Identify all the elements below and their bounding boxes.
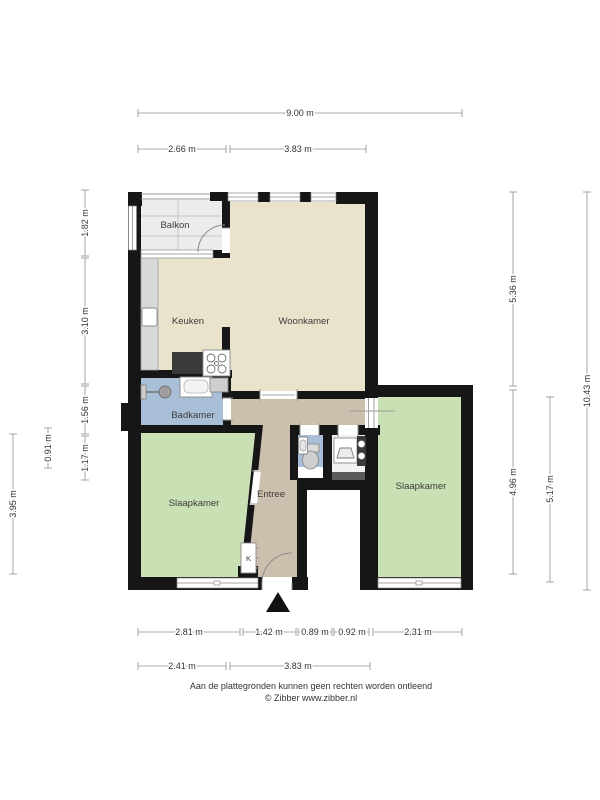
svg-text:3.10 m: 3.10 m: [80, 307, 90, 335]
door-wc: [300, 423, 319, 437]
dim-top-right: 3.83 m: [230, 144, 366, 154]
svg-text:2.81 m: 2.81 m: [175, 627, 203, 637]
svg-text:0.89 m: 0.89 m: [301, 627, 329, 637]
svg-text:0.92 m: 0.92 m: [338, 627, 366, 637]
dim-top-left: 2.66 m: [138, 144, 226, 154]
closet-label: K: [246, 554, 251, 563]
floorplan-canvas: K Balkon Keuken Woonkamer Badkamer Slaap…: [0, 0, 600, 800]
wc-sink-icon: [299, 437, 308, 454]
dim-top-total: 9.00 m: [138, 108, 462, 118]
svg-text:5.17 m: 5.17 m: [545, 475, 555, 503]
dim-bottom-slaapkamer-rechts: 2.31 m: [373, 627, 462, 637]
svg-text:3.83 m: 3.83 m: [284, 661, 312, 671]
bathroom-cabinet: [210, 378, 228, 392]
dim-bottom-entree: 1.42 m: [243, 627, 296, 637]
svg-text:0.91 m: 0.91 m: [43, 434, 53, 462]
svg-text:4.96 m: 4.96 m: [508, 468, 518, 496]
svg-text:3.95 m: 3.95 m: [8, 490, 18, 518]
svg-text:2.41 m: 2.41 m: [168, 661, 196, 671]
dim-left-slaapkamer: 3.95 m: [8, 434, 18, 574]
svg-text:3.83 m: 3.83 m: [284, 144, 312, 154]
window-slaapkamer-links: [177, 578, 258, 588]
footer-copyright: © Zibber www.zibber.nl: [265, 693, 357, 703]
dim-bottom2-links: 2.41 m: [138, 661, 226, 671]
window-woonkamer-2: [270, 193, 300, 201]
dim-bottom-slaapkamer-links: 2.81 m: [138, 627, 240, 637]
window-woonkamer-3: [311, 193, 336, 201]
washing-machine-icon: [334, 436, 366, 466]
label-slaapkamer-rechts: Slaapkamer: [396, 481, 447, 492]
label-balkon: Balkon: [160, 220, 189, 231]
hob-icon: [203, 350, 230, 376]
label-keuken: Keuken: [172, 316, 204, 327]
dim-bottom-wc: 0.89 m: [298, 627, 332, 637]
svg-text:10.43 m: 10.43 m: [582, 375, 592, 408]
svg-text:1.56 m: 1.56 m: [80, 396, 90, 424]
svg-text:9.00 m: 9.00 m: [286, 108, 314, 118]
washok-counter-strip: [332, 472, 365, 480]
dim-left-klein: 0.91 m: [43, 428, 53, 468]
bathroom-sink-icon: [180, 377, 212, 397]
dim-right-onder-buiten: 5.17 m: [545, 397, 555, 582]
kitchen-sink-icon: [142, 308, 157, 326]
svg-text:2.66 m: 2.66 m: [168, 144, 196, 154]
dim-left-balkon: 1.82 m: [80, 190, 90, 256]
footer: Aan de plattegronden kunnen geen rechten…: [190, 681, 432, 703]
window-woonkamer-1: [228, 193, 258, 201]
dim-right-totaal: 10.43 m: [582, 192, 592, 590]
label-slaapkamer-links: Slaapkamer: [169, 498, 220, 509]
svg-text:1.82 m: 1.82 m: [80, 209, 90, 237]
stove-icon: [172, 352, 203, 374]
floorplan-page: K Balkon Keuken Woonkamer Badkamer Slaap…: [0, 0, 600, 800]
dim-right-onder-binnen: 4.96 m: [508, 390, 518, 574]
hall-corridor: [231, 397, 365, 427]
door-washok: [338, 423, 358, 437]
balkon-railing: [141, 194, 210, 199]
window-slaapkamer-rechts: [378, 578, 461, 588]
dim-left-keuken: 3.10 m: [80, 258, 90, 384]
footer-disclaimer: Aan de plattegronden kunnen geen rechten…: [190, 681, 432, 691]
room-woonkamer: [222, 202, 365, 391]
dim-bottom2-rechts: 3.83 m: [230, 661, 370, 671]
closet-kast: K: [241, 543, 260, 573]
svg-text:1.17 m: 1.17 m: [80, 444, 90, 472]
dim-left-hal: 1.17 m: [80, 436, 90, 480]
entrance-arrow-icon: [266, 592, 290, 612]
svg-text:5.36 m: 5.36 m: [508, 275, 518, 303]
dim-left-badkamer: 1.56 m: [80, 386, 90, 434]
dim-right-boven: 5.36 m: [508, 192, 518, 386]
window-balkon-keuken: [141, 250, 213, 258]
label-woonkamer: Woonkamer: [278, 316, 329, 327]
dim-bottom-washok: 0.92 m: [334, 627, 369, 637]
svg-text:2.31 m: 2.31 m: [404, 627, 432, 637]
window-balkon-left: [129, 206, 137, 250]
svg-text:1.42 m: 1.42 m: [255, 627, 283, 637]
label-badkamer: Badkamer: [171, 410, 214, 421]
label-entree: Entree: [257, 489, 285, 500]
void-stairwell: [307, 490, 362, 590]
